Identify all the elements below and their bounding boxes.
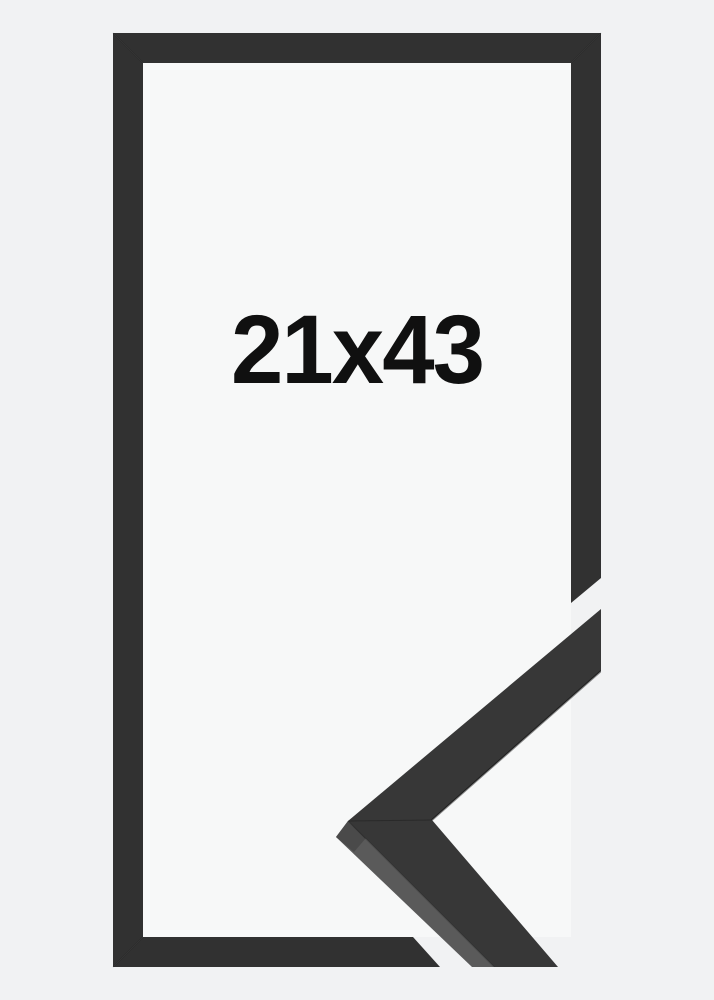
frame-opening (143, 63, 571, 937)
frame-border-top (113, 33, 601, 63)
product-image: 21x43 (0, 0, 714, 1000)
size-label: 21x43 (231, 295, 483, 404)
frame-border-bottom (113, 937, 440, 967)
frame-border-right (571, 33, 601, 603)
frame-border-left (113, 33, 143, 967)
